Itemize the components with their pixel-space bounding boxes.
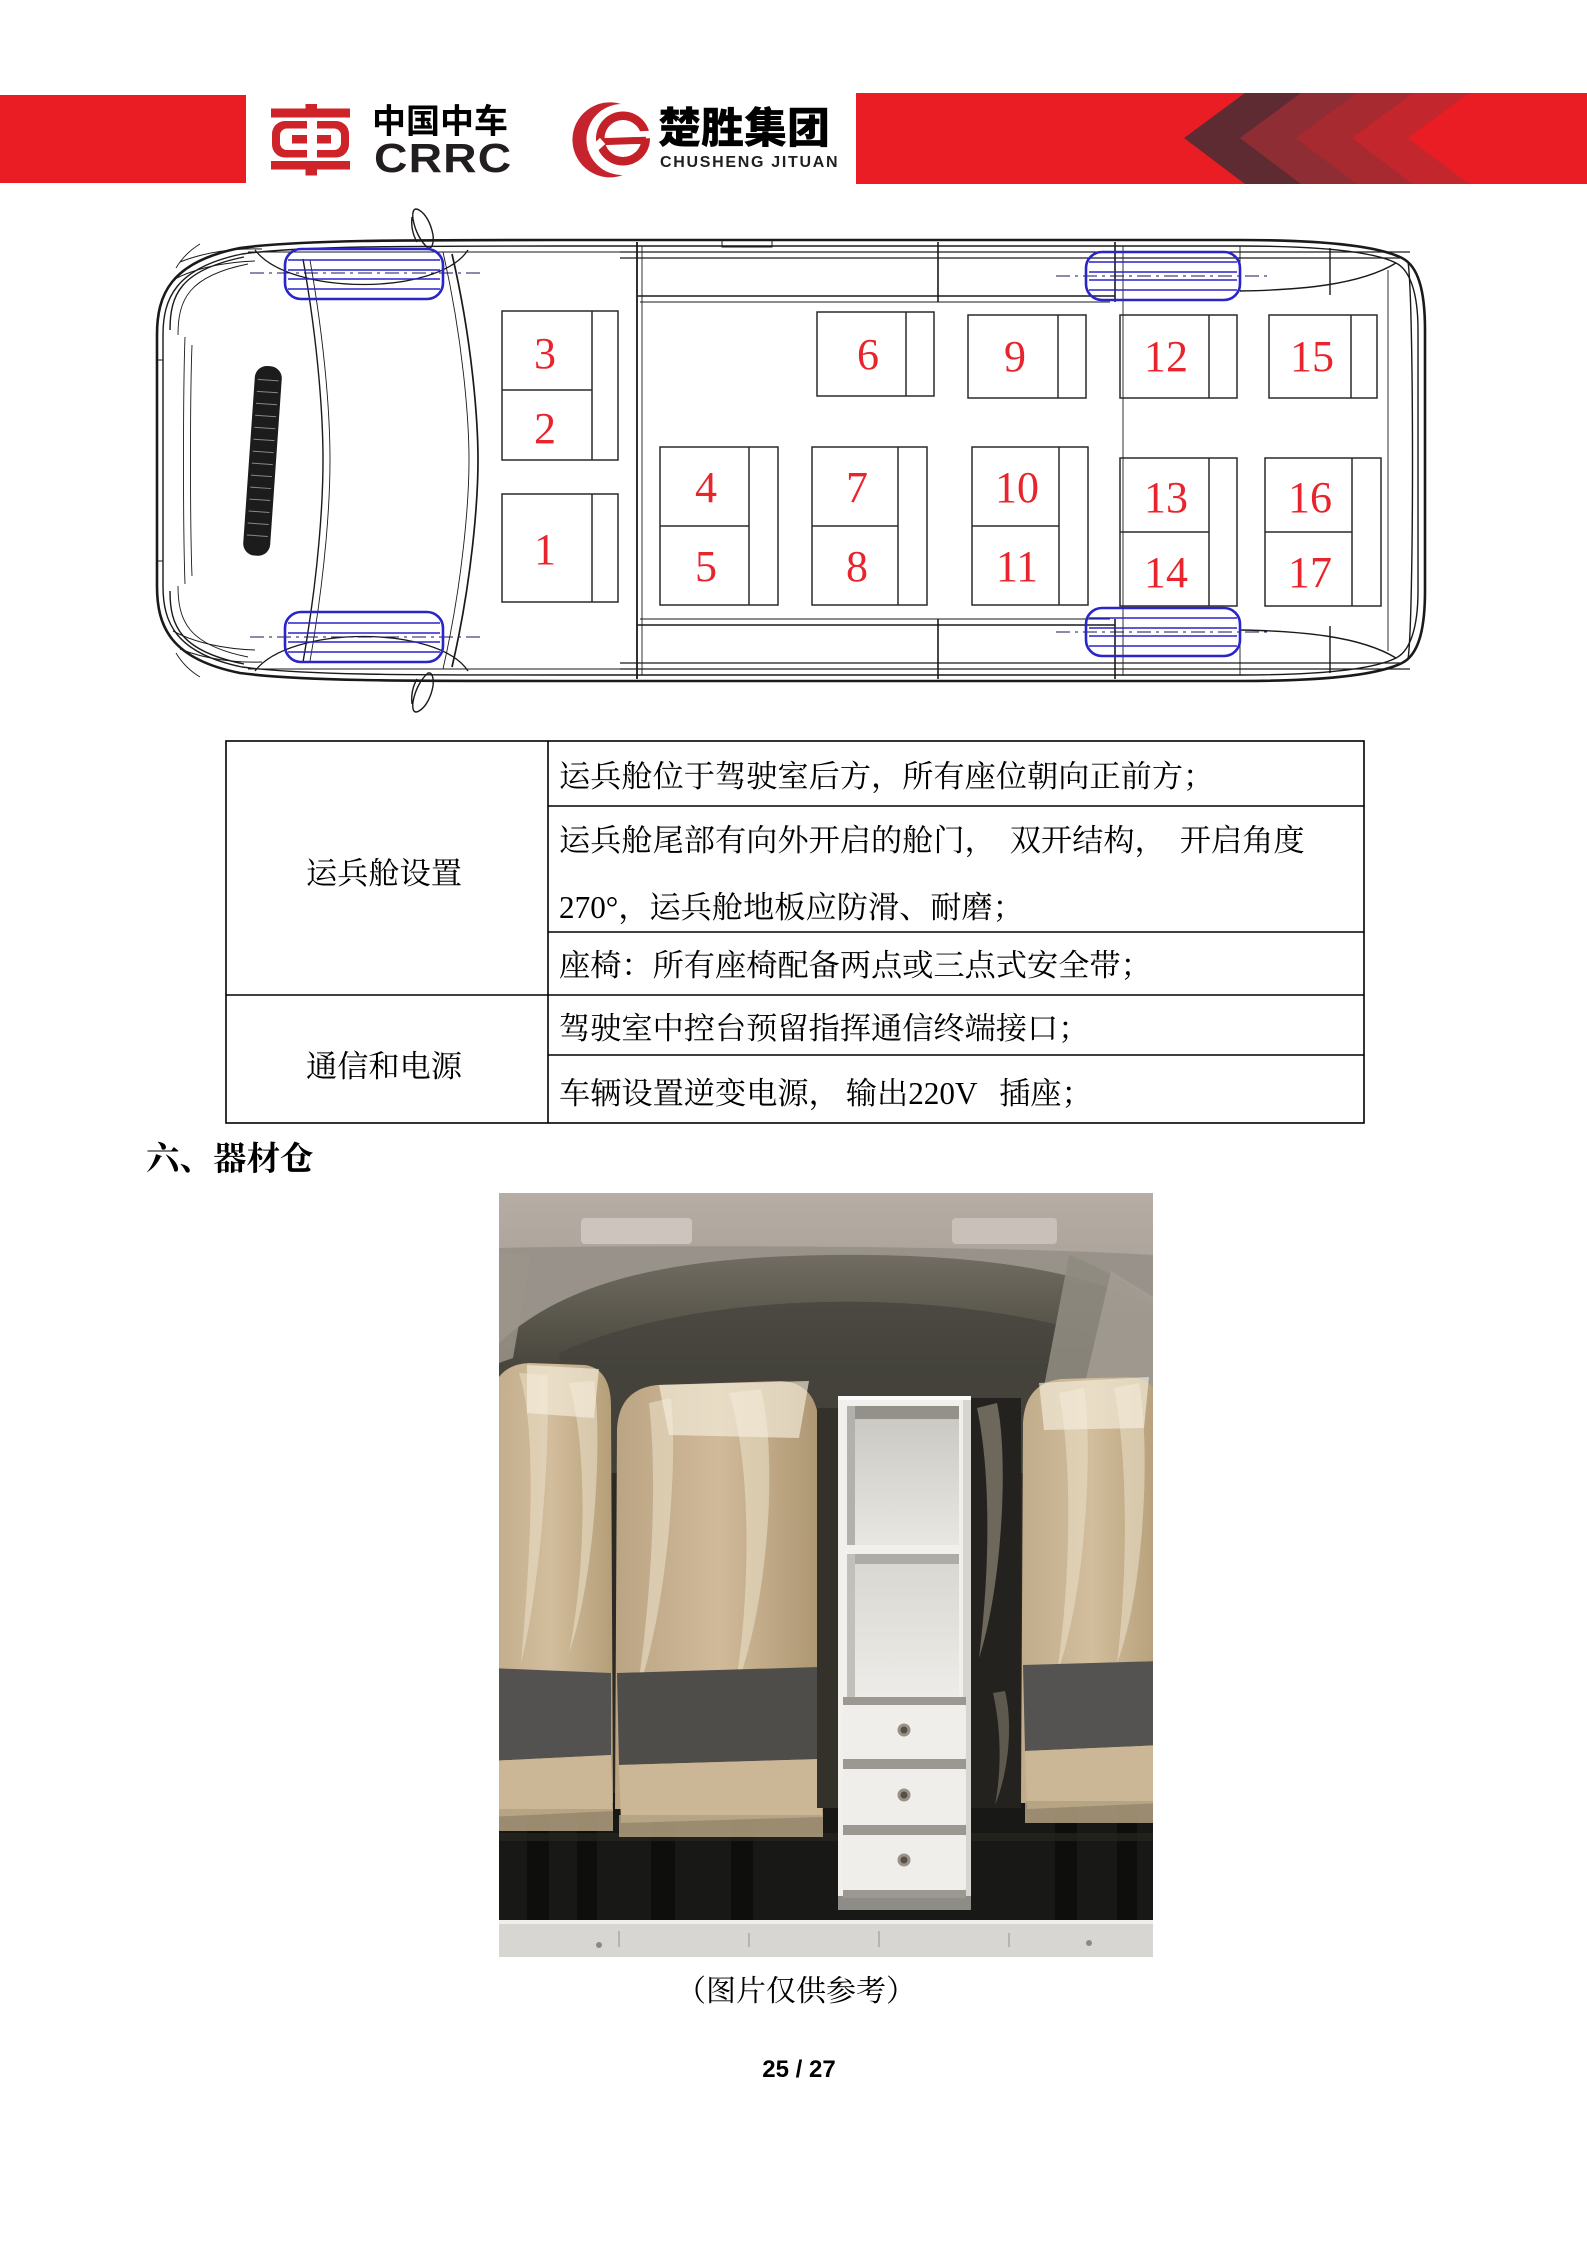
svg-text:7: 7 [846, 463, 868, 512]
svg-text:2: 2 [534, 404, 556, 453]
svg-text:25 / 27: 25 / 27 [762, 2056, 835, 2083]
svg-text:14: 14 [1144, 548, 1188, 597]
svg-text:220V: 220V [908, 1076, 978, 1111]
svg-text:17: 17 [1288, 548, 1332, 597]
svg-text:15: 15 [1290, 332, 1334, 381]
svg-text:4: 4 [695, 463, 717, 512]
svg-text:6: 6 [857, 330, 879, 379]
svg-text:3: 3 [534, 329, 556, 378]
svg-text:9: 9 [1004, 332, 1026, 381]
svg-text:5: 5 [695, 542, 717, 591]
svg-text:12: 12 [1144, 332, 1188, 381]
svg-text:8: 8 [846, 542, 868, 591]
svg-text:270°: 270° [559, 890, 618, 925]
svg-text:CRRC: CRRC [374, 135, 512, 181]
svg-text:1: 1 [534, 525, 556, 574]
svg-text:CHUSHENG JITUAN: CHUSHENG JITUAN [660, 154, 839, 171]
svg-text:11: 11 [996, 542, 1038, 591]
svg-text:13: 13 [1144, 473, 1188, 522]
svg-text:16: 16 [1288, 473, 1332, 522]
svg-text:10: 10 [995, 463, 1039, 512]
